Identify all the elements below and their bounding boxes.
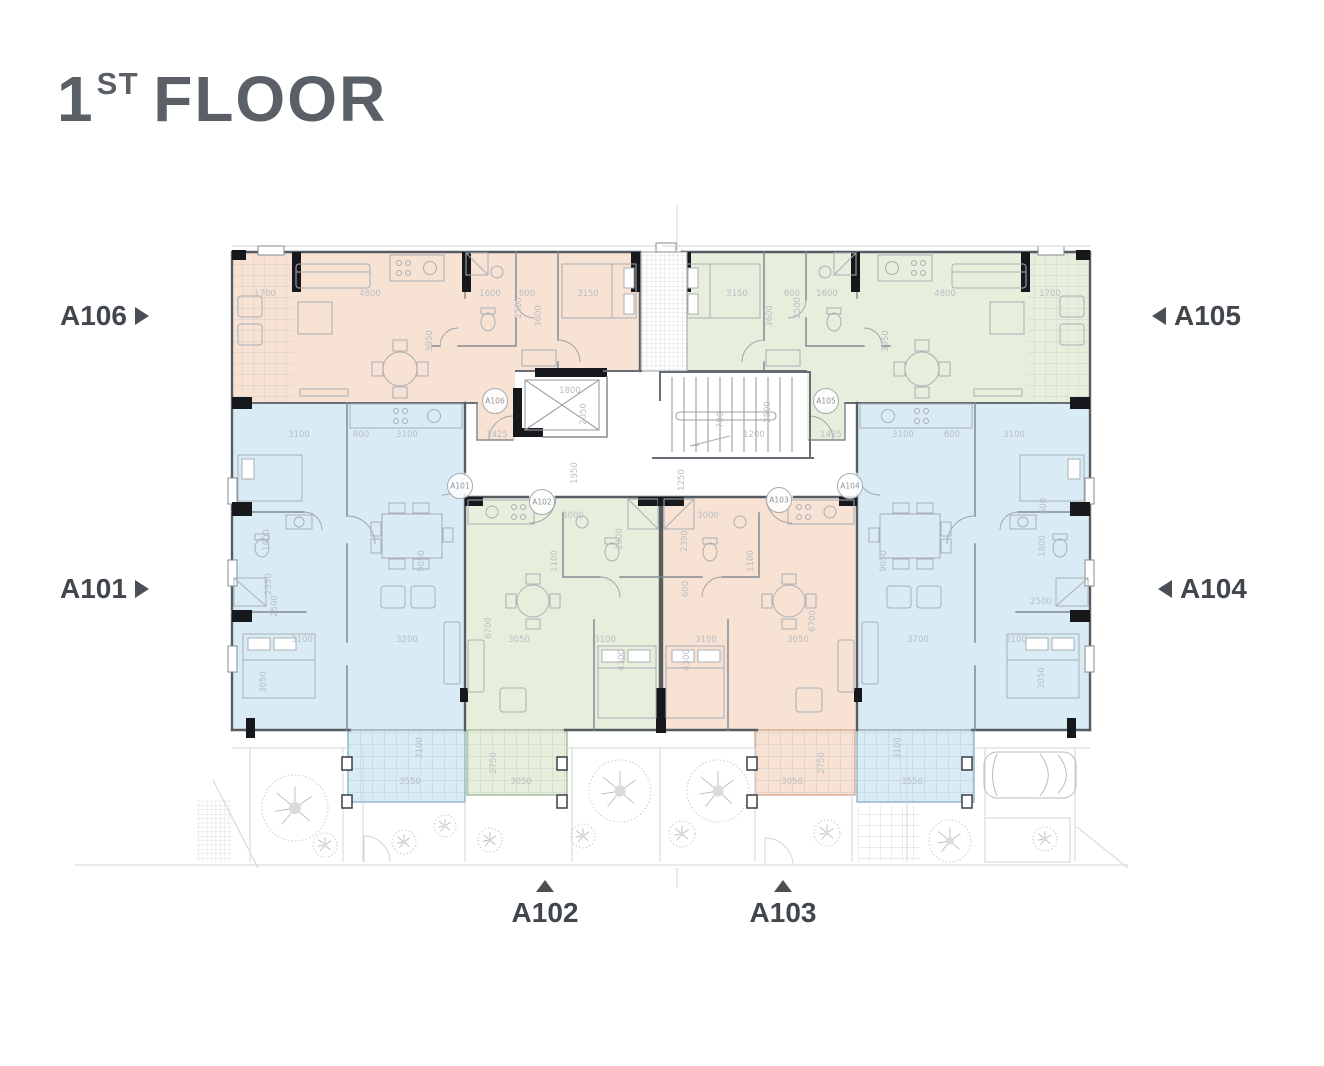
svg-text:3100: 3100 (288, 430, 310, 440)
svg-text:9050: 9050 (417, 550, 427, 572)
elevator (513, 368, 607, 437)
tree-icon (262, 775, 328, 841)
svg-text:2390: 2390 (680, 530, 690, 552)
svg-text:1600: 1600 (479, 289, 501, 299)
svg-text:A103: A103 (769, 496, 789, 505)
svg-text:3050: 3050 (510, 777, 532, 787)
svg-text:2500: 2500 (793, 297, 803, 319)
svg-text:6700: 6700 (808, 610, 818, 632)
svg-text:1800: 1800 (559, 386, 581, 396)
svg-text:1600: 1600 (262, 529, 272, 551)
svg-text:1700: 1700 (254, 289, 276, 299)
svg-text:2750: 2750 (817, 752, 827, 774)
svg-text:2050: 2050 (579, 403, 589, 425)
tree-icon (1033, 827, 1057, 851)
svg-text:3100: 3100 (892, 430, 914, 440)
svg-text:3600: 3600 (534, 305, 544, 327)
balcony-grid (755, 730, 855, 795)
svg-text:A106: A106 (485, 397, 505, 406)
svg-text:1700: 1700 (1039, 289, 1061, 299)
svg-text:2750: 2750 (489, 752, 499, 774)
car-icon (984, 752, 1076, 798)
svg-text:3550: 3550 (399, 777, 421, 787)
svg-text:2500: 2500 (1030, 597, 1052, 607)
svg-text:3100: 3100 (415, 737, 425, 759)
tree-icon (478, 828, 502, 852)
svg-text:3050: 3050 (259, 671, 269, 693)
svg-text:600: 600 (1039, 498, 1049, 514)
svg-text:3550: 3550 (901, 777, 923, 787)
paving-grid (196, 800, 232, 862)
svg-text:4800: 4800 (359, 289, 381, 299)
tree-icon (814, 820, 840, 846)
svg-text:3100: 3100 (594, 635, 616, 645)
svg-text:700: 700 (716, 412, 726, 428)
svg-text:3700: 3700 (907, 635, 929, 645)
svg-text:2350: 2350 (264, 573, 274, 595)
svg-text:3950: 3950 (425, 330, 435, 352)
svg-text:2500: 2500 (514, 297, 524, 319)
tree-icon (392, 830, 416, 854)
svg-text:1100: 1100 (746, 550, 756, 572)
svg-text:4800: 4800 (934, 289, 956, 299)
staircase (653, 372, 813, 458)
svg-text:3100: 3100 (1005, 635, 1027, 645)
svg-text:600: 600 (353, 430, 369, 440)
tree-icon (313, 833, 337, 857)
svg-text:3950: 3950 (881, 330, 891, 352)
floor-plan: 1700480016006003150395025003600315060016… (0, 0, 1324, 1066)
svg-text:3150: 3150 (726, 289, 748, 299)
svg-text:3100: 3100 (893, 737, 903, 759)
svg-text:A101: A101 (450, 482, 470, 491)
svg-text:9050: 9050 (879, 550, 889, 572)
svg-text:2300: 2300 (615, 528, 625, 550)
svg-text:A104: A104 (840, 482, 860, 491)
svg-text:A105: A105 (816, 397, 836, 406)
tree-icon (687, 760, 749, 822)
terrace-a106 (232, 252, 294, 403)
svg-text:3100: 3100 (291, 635, 313, 645)
svg-text:600: 600 (681, 581, 691, 597)
tree-icon (669, 821, 695, 847)
svg-text:3050: 3050 (787, 635, 809, 645)
svg-text:A102: A102 (532, 498, 552, 507)
svg-text:3100: 3100 (1003, 430, 1025, 440)
svg-text:3000: 3000 (697, 511, 719, 521)
svg-text:3150: 3150 (577, 289, 599, 299)
paving-grid (858, 806, 920, 862)
svg-text:1600: 1600 (816, 289, 838, 299)
svg-text:3100: 3100 (695, 635, 717, 645)
tree-icon (434, 815, 456, 837)
svg-text:1950: 1950 (570, 462, 580, 484)
unit-a104-area[interactable] (857, 403, 1090, 730)
tree-icon (589, 760, 651, 822)
light-well (641, 252, 687, 371)
svg-text:2500: 2500 (763, 401, 773, 423)
tree-icon (929, 820, 971, 862)
svg-text:1425: 1425 (486, 430, 508, 440)
svg-text:1250: 1250 (677, 469, 687, 491)
balcony-grid (857, 730, 974, 802)
svg-text:2500: 2500 (270, 595, 280, 617)
svg-text:6700: 6700 (484, 617, 494, 639)
balcony-grid (348, 730, 465, 802)
svg-text:4300: 4300 (617, 649, 627, 671)
svg-text:1200: 1200 (743, 430, 765, 440)
svg-text:3050: 3050 (1037, 667, 1047, 689)
svg-text:1425: 1425 (820, 430, 842, 440)
svg-text:600: 600 (944, 430, 960, 440)
svg-text:4300: 4300 (682, 649, 692, 671)
svg-text:1800: 1800 (1038, 535, 1048, 557)
svg-text:3200: 3200 (396, 635, 418, 645)
svg-text:3100: 3100 (396, 430, 418, 440)
svg-text:1100: 1100 (550, 550, 560, 572)
svg-text:3050: 3050 (781, 777, 803, 787)
floor-plan-page: 1STFLOOR A106 A105 A101 A104 A102 A103 (0, 0, 1324, 1066)
svg-text:3000: 3000 (562, 511, 584, 521)
svg-text:3600: 3600 (765, 305, 775, 327)
svg-text:3050: 3050 (508, 635, 530, 645)
tree-icon (571, 824, 595, 848)
terrace-a105 (1028, 252, 1090, 403)
